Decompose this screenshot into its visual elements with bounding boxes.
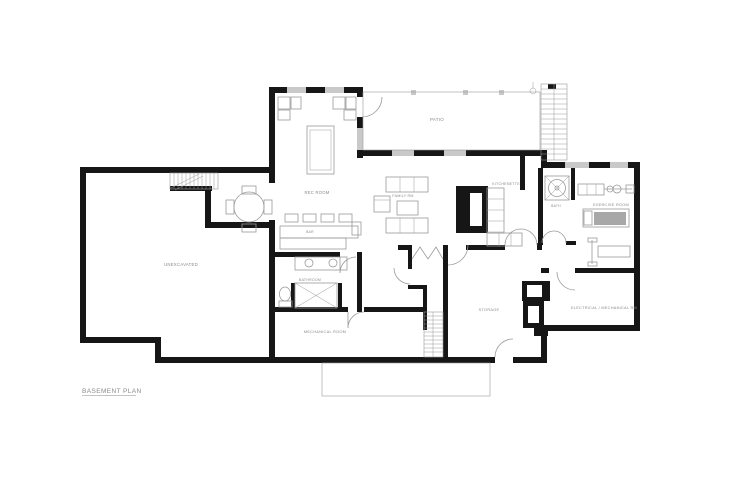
room-label-bar: BAR	[306, 230, 314, 234]
chimney-inset	[528, 306, 539, 323]
bench-bar-cap	[588, 262, 597, 266]
dining-chair	[226, 200, 234, 214]
pool-table-inner	[310, 130, 331, 170]
furniture	[170, 82, 634, 396]
wall	[357, 87, 363, 97]
door-swing	[362, 97, 382, 117]
sink	[305, 259, 313, 267]
dining-table	[234, 192, 264, 222]
treadmill-belt	[594, 212, 626, 225]
kitchenette-counter	[487, 233, 522, 246]
dining-chair	[264, 200, 272, 214]
sofa-cushions	[400, 177, 414, 192]
window	[325, 87, 344, 93]
treadmill-console	[584, 211, 592, 225]
wall	[291, 283, 295, 312]
chimney-inset	[527, 285, 542, 297]
deck-post	[499, 90, 504, 95]
room-label-rec-room: REC ROOM	[304, 190, 329, 195]
bar-stool	[321, 214, 334, 222]
wall	[269, 220, 275, 363]
stair-rail-post	[548, 84, 556, 89]
wall	[338, 283, 342, 312]
drawing-title: BASEMENT PLAN	[82, 388, 142, 395]
side-table	[352, 222, 361, 235]
wall	[269, 252, 340, 257]
wall	[80, 167, 86, 343]
chimney-foundation	[534, 328, 548, 336]
room-label-bathroom: BATHROOM	[299, 278, 321, 282]
exterior-stair-treads	[541, 84, 567, 160]
title-block: BASEMENT PLAN	[82, 388, 142, 396]
bar-back-counter	[280, 238, 346, 249]
bench-bar-cap	[588, 238, 597, 242]
lounge-chair	[346, 97, 356, 109]
wall	[80, 167, 275, 173]
room-label-storage: STORAGE	[479, 307, 500, 312]
room-label-family-room: FAMILY RM	[392, 194, 413, 198]
side-table	[278, 110, 290, 120]
sofa-cushions	[400, 218, 414, 233]
sofa	[386, 218, 428, 233]
sink	[329, 259, 337, 267]
floor-plan-drawing: PATIO REC ROOM BAR FAMILY RM KITCHENETTE…	[0, 0, 737, 491]
door-swing	[448, 245, 468, 265]
bar-counter	[280, 226, 358, 238]
wall	[364, 307, 426, 312]
coffee-table	[397, 201, 418, 215]
wall	[443, 245, 448, 363]
weight-bench	[598, 246, 630, 257]
tub-shower-cross	[295, 283, 337, 308]
lounge-chair	[333, 97, 345, 109]
room-label-bath: BATH	[551, 204, 561, 208]
concrete-slab	[322, 363, 490, 396]
wall	[520, 150, 525, 190]
barbell-rack	[578, 184, 604, 195]
wall	[538, 168, 543, 245]
fireplace-inset	[470, 193, 482, 226]
wall	[423, 285, 427, 330]
room-label-electrical: ELECTRICAL / MECHANICAL RM	[571, 305, 637, 310]
lounge-chair	[291, 97, 301, 109]
door-swing	[557, 272, 575, 290]
wall	[541, 325, 640, 331]
room-label-unexcavated: UNEXCAVATED	[164, 262, 198, 267]
bar-stool	[303, 214, 316, 222]
bar-stool	[339, 214, 352, 222]
room-label-patio: PATIO	[430, 117, 444, 122]
window	[610, 162, 628, 168]
deck-post	[463, 90, 468, 95]
pool-table	[307, 126, 334, 174]
windows	[287, 87, 628, 168]
patio-deck	[363, 92, 540, 150]
window	[392, 150, 414, 156]
bar-stool	[285, 214, 298, 222]
vanity	[295, 257, 347, 270]
wall	[269, 87, 363, 93]
wall	[205, 222, 275, 228]
toilet-tank	[279, 301, 292, 307]
wall	[170, 186, 212, 191]
sofa	[386, 177, 428, 192]
room-label-mechanical: MECHANICAL ROOM	[304, 329, 346, 334]
window	[357, 128, 363, 150]
drawing-marker-icon	[530, 88, 536, 94]
wall	[566, 241, 576, 245]
door-swing	[340, 257, 356, 273]
room-label-kitchenette: KITCHENETTE	[492, 182, 520, 186]
window	[565, 162, 589, 168]
lounge-chair	[278, 97, 290, 109]
armchair	[374, 196, 390, 212]
wall	[571, 168, 575, 200]
kitchenette-counter	[487, 188, 504, 233]
barbell-rack-dividers	[587, 184, 596, 195]
door-swing	[495, 339, 513, 357]
window	[444, 150, 466, 156]
room-label-exercise: EXERCISE ROOM	[593, 202, 629, 207]
double-doors	[505, 229, 537, 245]
door-swing	[348, 312, 364, 328]
basement-floor-plan-sheet: PATIO REC ROOM BAR FAMILY RM KITCHENETTE…	[0, 0, 737, 491]
double-doors	[542, 231, 566, 243]
bifold-closet-doors	[412, 247, 443, 259]
window	[287, 87, 306, 93]
wall	[575, 268, 635, 273]
wall	[357, 252, 362, 312]
wall	[80, 337, 160, 343]
wall	[408, 245, 412, 269]
wall	[541, 268, 549, 273]
deck-post	[411, 90, 416, 95]
door-swing	[394, 268, 410, 284]
cabinet-dividers	[487, 199, 504, 232]
side-table	[344, 110, 356, 120]
toilet	[280, 287, 291, 301]
